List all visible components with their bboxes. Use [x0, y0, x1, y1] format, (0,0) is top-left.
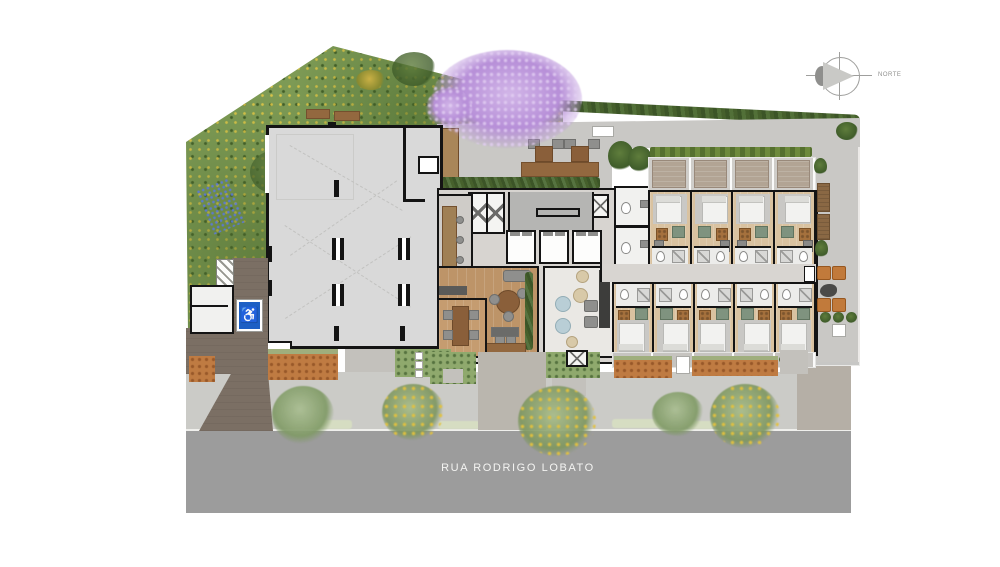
front-planter — [268, 349, 338, 380]
unit-wardrobe — [672, 226, 685, 238]
yard-bench — [817, 214, 830, 240]
column — [334, 326, 339, 341]
patio-awning — [735, 160, 769, 188]
unit-wardrobe — [698, 226, 711, 238]
shower-icon — [637, 288, 650, 302]
stepping-stone — [415, 370, 423, 378]
yard-shrub — [836, 122, 858, 140]
front-pad — [443, 369, 463, 383]
garden-bench — [334, 111, 360, 121]
front-planter — [692, 356, 778, 376]
elevator-door — [543, 232, 565, 236]
hall-partition — [403, 128, 406, 202]
yard-bench — [817, 183, 830, 212]
lounge-armchair — [584, 316, 598, 328]
unit — [692, 192, 734, 266]
column-pair — [398, 238, 410, 260]
yard-planter — [815, 240, 828, 258]
unit — [776, 284, 816, 354]
unit-pillow — [744, 344, 768, 351]
lounge-table — [566, 336, 578, 348]
stair-handrail — [536, 208, 580, 217]
front-planter — [614, 356, 672, 378]
meeting-table — [452, 306, 469, 346]
terrace-sign — [592, 126, 614, 137]
shower-icon — [718, 288, 731, 302]
corridor-end-door — [804, 266, 815, 282]
north-arrow-icon — [823, 62, 854, 90]
accessible-parking-sign: ♿ — [237, 300, 262, 331]
unit — [614, 284, 654, 354]
service-room-divider — [192, 305, 228, 307]
unit-patios — [648, 157, 816, 192]
toilet-icon — [679, 289, 688, 300]
unit — [650, 192, 692, 266]
meeting-chair — [469, 330, 479, 340]
toilet-icon — [799, 251, 808, 262]
street-name-label: RUA RODRIGO LOBATO — [408, 462, 628, 474]
terrace-chair — [588, 139, 600, 149]
terrace-table — [571, 146, 589, 162]
lounge-pouf — [555, 296, 571, 312]
column-pair — [332, 284, 344, 306]
unit-bathroom — [777, 246, 813, 265]
toilet-icon — [760, 289, 769, 300]
yard-pot — [833, 312, 844, 323]
toilet-icon — [621, 202, 631, 214]
shower-icon — [740, 288, 753, 302]
unit-pillow — [663, 344, 687, 351]
terrace-bar-counter — [521, 162, 599, 177]
reception-counter — [439, 286, 467, 295]
unit-hedge-strip — [650, 147, 812, 157]
unit-patio — [649, 158, 691, 191]
wheelchair-icon: ♿ — [240, 308, 259, 323]
front-pad — [780, 350, 808, 374]
toilet-icon — [620, 289, 629, 300]
hall-partition — [403, 199, 425, 202]
patio-awning — [777, 160, 811, 188]
elevator-cab — [539, 230, 569, 264]
toilet-icon — [716, 251, 725, 262]
garden-tree — [392, 52, 436, 86]
sidewalk-tree — [518, 386, 596, 456]
lobby-chair — [489, 294, 500, 305]
unit-bathroom — [735, 246, 771, 265]
toilet-icon — [701, 289, 710, 300]
shower-icon — [672, 250, 685, 263]
site-plan: RUA RODRIGO LOBATO — [0, 0, 1000, 567]
unit-pillow — [739, 196, 763, 203]
lounge-armchair — [584, 300, 598, 312]
locker-item — [456, 216, 464, 224]
hall-guide — [276, 134, 354, 200]
front-shaft — [566, 350, 588, 367]
toilet-icon — [656, 251, 665, 262]
toilet-icon — [739, 251, 748, 262]
stepping-stone — [415, 352, 423, 360]
front-pad — [345, 349, 397, 372]
terrace-table — [535, 146, 553, 162]
terrace-chair — [552, 139, 564, 149]
units-top-row — [648, 190, 818, 268]
hall-opening — [265, 135, 269, 193]
locker-item — [456, 256, 464, 264]
hall-niche — [418, 156, 439, 174]
toilet-icon — [782, 289, 791, 300]
meeting-chair — [469, 310, 479, 320]
unit-bathroom — [656, 284, 690, 308]
toilet-icon — [621, 242, 631, 254]
units-bottom-row — [612, 282, 818, 356]
yard-pot — [820, 312, 831, 323]
sidewalk-tree — [710, 384, 780, 448]
yard-beanbag — [820, 284, 837, 297]
lounge-table — [576, 270, 589, 283]
yard-planter — [814, 158, 827, 175]
unit-wardrobe — [716, 308, 729, 320]
pouf — [817, 298, 831, 312]
unit — [735, 284, 775, 354]
unit-bathroom — [778, 284, 812, 308]
unit-pillow — [785, 196, 809, 203]
elevator-cab — [572, 230, 602, 264]
corridor — [600, 264, 818, 282]
unit-bathroom — [737, 284, 771, 308]
lobby-chair — [503, 311, 514, 322]
unit — [733, 192, 775, 266]
stepping-stone — [415, 361, 423, 369]
meeting-chair — [443, 330, 453, 340]
unit-pillow — [619, 344, 643, 351]
garden-shrub — [356, 70, 386, 90]
column-pair — [332, 238, 344, 260]
pouf — [832, 298, 846, 312]
sidewalk-tree — [382, 384, 444, 440]
unit-patio — [691, 158, 733, 191]
unit-wardrobe — [797, 308, 810, 320]
shower-icon — [697, 250, 710, 263]
elevator-cab — [506, 230, 536, 264]
column — [328, 122, 336, 128]
unit-pillow — [700, 344, 724, 351]
yard-box — [832, 324, 846, 337]
stepping-strip — [676, 356, 690, 374]
unit-patio — [732, 158, 774, 191]
unit-wardrobe — [635, 308, 648, 320]
pouf — [817, 266, 831, 280]
shaft — [486, 192, 505, 234]
wc-divider — [616, 225, 652, 228]
unit-wardrobe — [781, 226, 794, 238]
pouf — [832, 266, 846, 280]
lounge-pouf — [555, 318, 571, 334]
unit-bathroom — [616, 284, 650, 308]
unit-bathroom — [694, 246, 730, 265]
unit — [654, 284, 694, 354]
planter — [189, 356, 215, 382]
elevator-bank — [506, 230, 602, 262]
compass-rose: NORTE — [806, 52, 906, 100]
unit-pillow — [656, 196, 680, 203]
sidewalk-tree — [652, 392, 704, 436]
locker-item — [456, 236, 464, 244]
flowering-tree — [426, 88, 472, 128]
unit-pillow — [702, 196, 726, 203]
patio-awning — [694, 160, 728, 188]
shaft — [592, 194, 609, 218]
elevator-door — [510, 232, 532, 236]
column-pair — [398, 284, 410, 306]
unit-wardrobe — [741, 308, 754, 320]
elevator-door — [576, 232, 598, 236]
curb-line-left — [186, 429, 200, 431]
sidewalk-tree — [272, 386, 334, 444]
meeting-chair — [443, 310, 453, 320]
unit-bathroom — [652, 246, 688, 265]
curb-grass — [438, 421, 480, 429]
lobby-plant-strip — [525, 272, 533, 350]
unit-wardrobe — [660, 308, 673, 320]
shower-icon — [659, 288, 672, 302]
compass-label: NORTE — [878, 72, 901, 78]
yard-pot — [846, 312, 857, 323]
unit-bathroom — [697, 284, 731, 308]
unit — [775, 192, 817, 266]
unit-wardrobe — [755, 226, 768, 238]
shower-icon — [755, 250, 768, 263]
unit-patio — [774, 158, 816, 191]
column — [400, 326, 405, 341]
garden-bench — [306, 109, 330, 119]
column — [334, 180, 339, 197]
shower-icon — [799, 288, 812, 302]
unit — [695, 284, 735, 354]
shower-icon — [780, 250, 793, 263]
patio-awning — [652, 160, 686, 188]
service-rooms — [190, 285, 234, 334]
